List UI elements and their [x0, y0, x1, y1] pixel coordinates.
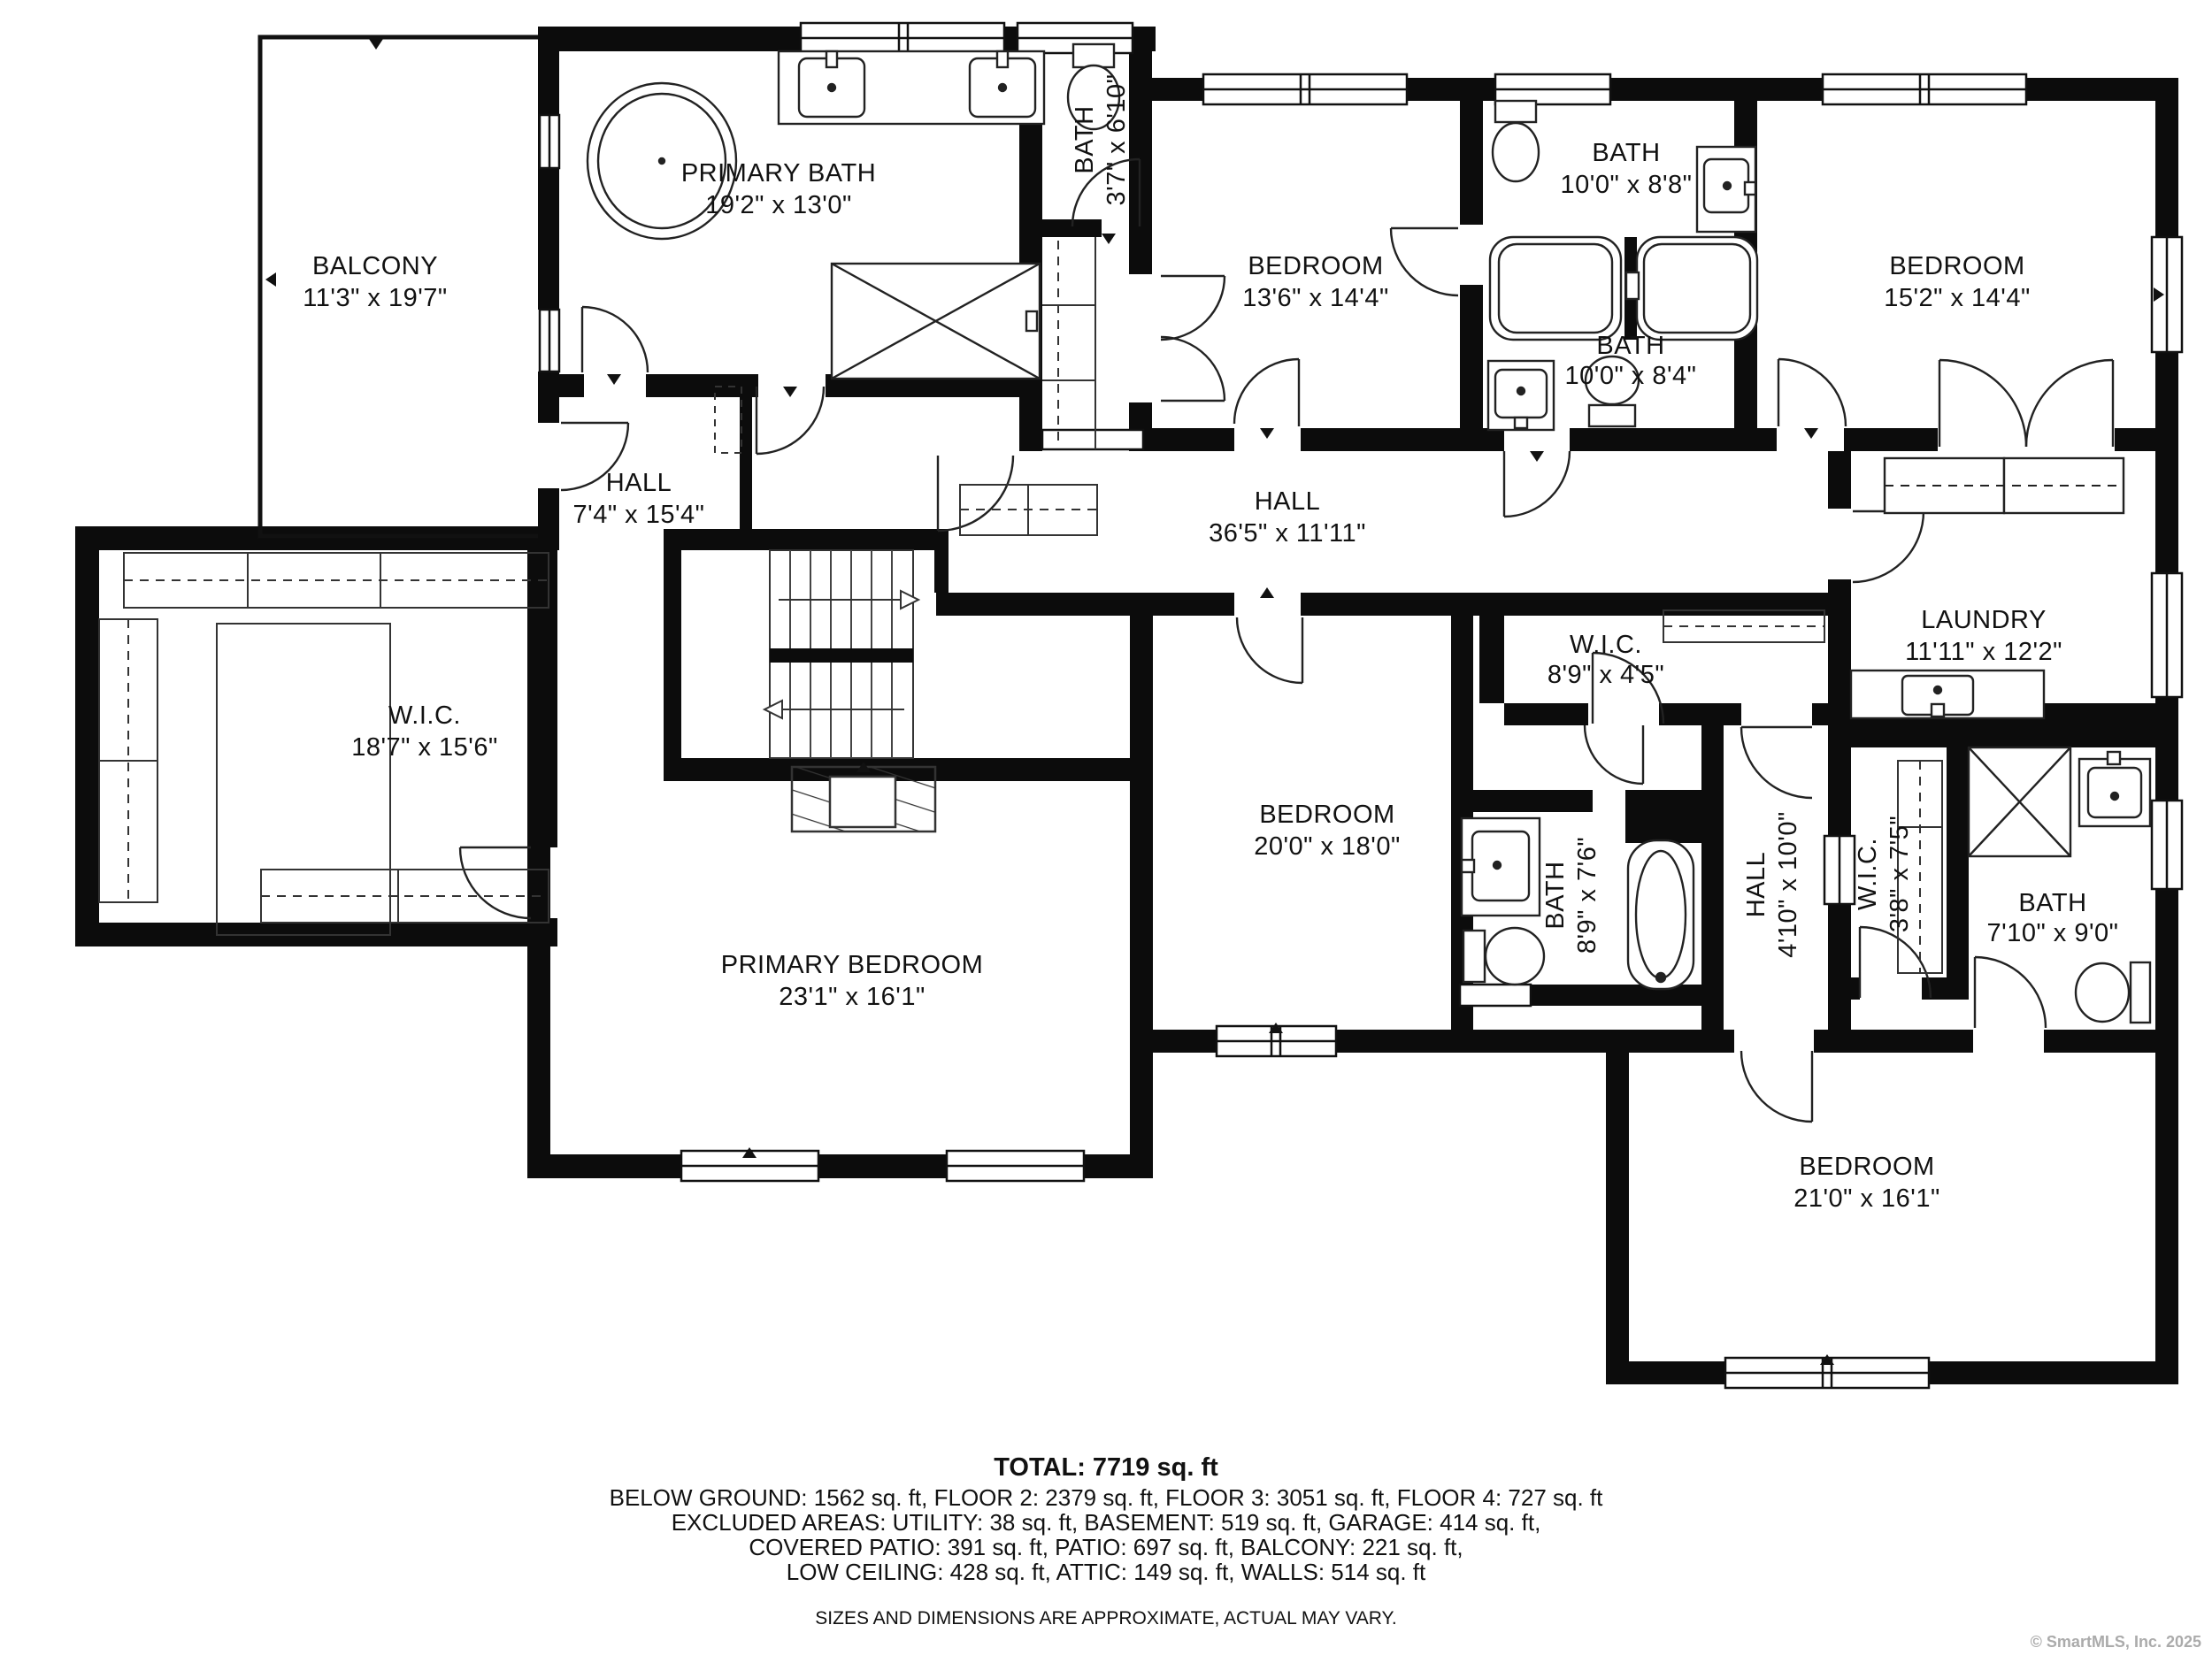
svg-text:15'2" x 14'4": 15'2" x 14'4"	[1884, 284, 2031, 312]
svg-text:8'9" x 4'5": 8'9" x 4'5"	[1548, 661, 1664, 689]
tub-icon	[1490, 237, 1621, 340]
laundry-counter-icon	[1885, 458, 2124, 513]
room-label-bath-89: BATH 8'9" x 7'6"	[1541, 837, 1601, 954]
svg-text:20'0" x 18'0": 20'0" x 18'0"	[1254, 832, 1401, 861]
svg-text:LAUNDRY: LAUNDRY	[1921, 606, 2047, 634]
pocket-door	[1824, 836, 1855, 904]
svg-text:3'7" x 6'10": 3'7" x 6'10"	[1102, 74, 1131, 206]
room-label-bedroom-21: BEDROOM 21'0" x 16'1"	[1793, 1153, 1940, 1213]
room-label-hall-main: HALL 36'5" x 11'11"	[1209, 487, 1366, 548]
svg-text:13'6" x 14'4": 13'6" x 14'4"	[1242, 284, 1389, 312]
shower-icon	[1969, 747, 2070, 856]
room-label-primary-bedroom: PRIMARY BEDROOM 23'1" x 16'1"	[721, 951, 983, 1011]
svg-text:23'1" x 16'1": 23'1" x 16'1"	[779, 983, 926, 1011]
window	[801, 23, 1004, 53]
cased-opening	[1460, 985, 1531, 1006]
summary-line-3: COVERED PATIO: 391 sq. ft, PATIO: 697 sq…	[749, 1534, 1463, 1560]
toilet-icon	[1463, 928, 1544, 985]
summary-line-4: LOW CEILING: 428 sq. ft, ATTIC: 149 sq. …	[787, 1559, 1426, 1585]
room-label-wic-primary: W.I.C. 18'7" x 15'6"	[351, 701, 498, 762]
vanity-icon	[1697, 147, 1755, 232]
room-label-bath-88: BATH 10'0" x 8'8"	[1561, 139, 1693, 199]
svg-text:11'3" x 19'7": 11'3" x 19'7"	[303, 284, 447, 312]
svg-text:10'0" x 8'4": 10'0" x 8'4"	[1565, 362, 1697, 390]
svg-text:BEDROOM: BEDROOM	[1259, 801, 1394, 829]
svg-text:BEDROOM: BEDROOM	[1799, 1153, 1934, 1181]
svg-text:7'10" x 9'0": 7'10" x 9'0"	[1987, 919, 2119, 947]
window	[2152, 801, 2182, 889]
room-label-hall-upper: HALL 7'4" x 15'4"	[573, 469, 705, 529]
svg-text:W.I.C.: W.I.C.	[1570, 631, 1642, 659]
room-label-bedroom-15: BEDROOM 15'2" x 14'4"	[1884, 252, 2031, 312]
low-ceiling-hatch	[792, 767, 935, 831]
room-label-bedroom-13: BEDROOM 13'6" x 14'4"	[1242, 252, 1389, 312]
svg-text:3'8" x 7'5": 3'8" x 7'5"	[1886, 816, 1914, 932]
vanity-icon	[1462, 818, 1540, 916]
window	[1823, 74, 2026, 104]
svg-text:21'0" x 16'1": 21'0" x 16'1"	[1793, 1184, 1940, 1213]
svg-text:BATH: BATH	[1541, 861, 1570, 929]
svg-text:W.I.C.: W.I.C.	[388, 701, 461, 730]
svg-text:BATH: BATH	[1592, 139, 1660, 167]
svg-text:10'0" x 8'8": 10'0" x 8'8"	[1561, 171, 1693, 199]
window	[540, 115, 559, 168]
summary-disclaimer: SIZES AND DIMENSIONS ARE APPROXIMATE, AC…	[815, 1608, 1396, 1629]
room-label-hall-410: HALL 4'10" x 10'0"	[1742, 811, 1802, 958]
window	[947, 1151, 1084, 1181]
svg-text:BEDROOM: BEDROOM	[1248, 252, 1383, 280]
room-label-wic-38: W.I.C. 3'8" x 7'5"	[1854, 816, 1914, 932]
svg-text:36'5" x 11'11": 36'5" x 11'11"	[1209, 519, 1366, 548]
svg-text:19'2" x 13'0": 19'2" x 13'0"	[705, 191, 852, 219]
bathtub-icon	[1628, 840, 1694, 989]
summary-total: TOTAL: 7719 sq. ft	[994, 1453, 1218, 1482]
svg-text:HALL: HALL	[1255, 487, 1321, 516]
vanity-icon	[1488, 361, 1554, 430]
copyright: © SmartMLS, Inc. 2025	[2031, 1633, 2201, 1651]
room-label-bedroom-20: BEDROOM 20'0" x 18'0"	[1254, 801, 1401, 861]
floor-plan: BALCONY 11'3" x 19'7" PRIMARY BATH 19'2"…	[0, 0, 2212, 1663]
summary-line-2: EXCLUDED AREAS: UTILITY: 38 sq. ft, BASE…	[672, 1509, 1541, 1536]
toilet-icon	[1493, 101, 1539, 181]
tub-icon	[1626, 237, 1757, 340]
laundry-sink-icon	[1851, 671, 2044, 718]
room-label-bath-710: BATH 7'10" x 9'0"	[1987, 889, 2119, 947]
svg-text:BATH: BATH	[1596, 332, 1664, 360]
summary-line-1: BELOW GROUND: 1562 sq. ft, FLOOR 2: 2379…	[610, 1484, 1604, 1511]
room-label-balcony: BALCONY 11'3" x 19'7"	[303, 252, 447, 312]
svg-text:11'11" x 12'2": 11'11" x 12'2"	[1905, 638, 2062, 666]
svg-text:PRIMARY BEDROOM: PRIMARY BEDROOM	[721, 951, 983, 979]
svg-text:BALCONY: BALCONY	[312, 252, 438, 280]
shower-icon	[832, 264, 1040, 379]
toilet-icon	[2076, 962, 2150, 1023]
window	[2152, 573, 2182, 697]
svg-text:8'9" x 7'6": 8'9" x 7'6"	[1573, 837, 1601, 954]
window	[1203, 74, 1407, 104]
svg-text:PRIMARY BATH: PRIMARY BATH	[681, 159, 876, 188]
room-label-wic-89: W.I.C. 8'9" x 4'5"	[1548, 631, 1664, 689]
svg-text:BATH: BATH	[2018, 889, 2086, 917]
window	[540, 310, 559, 372]
double-vanity-icon	[779, 51, 1044, 124]
svg-text:W.I.C.: W.I.C.	[1854, 838, 1882, 910]
svg-text:7'4" x 15'4": 7'4" x 15'4"	[573, 501, 705, 529]
svg-text:4'10" x 10'0": 4'10" x 10'0"	[1774, 811, 1802, 958]
stairs	[764, 550, 935, 831]
room-label-laundry: LAUNDRY 11'11" x 12'2"	[1905, 606, 2062, 666]
svg-text:HALL: HALL	[1742, 852, 1770, 918]
vanity-icon	[2079, 752, 2150, 826]
svg-text:BATH: BATH	[1071, 105, 1099, 173]
svg-text:HALL: HALL	[606, 469, 672, 497]
svg-text:BEDROOM: BEDROOM	[1889, 252, 2024, 280]
svg-text:18'7" x 15'6": 18'7" x 15'6"	[351, 733, 498, 762]
